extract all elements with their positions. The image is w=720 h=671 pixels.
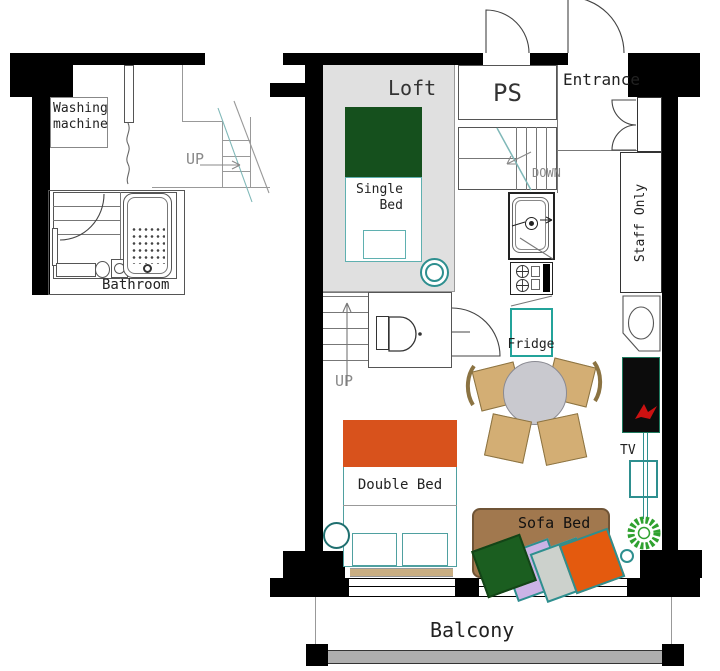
balcony-side [315,597,316,648]
plant-icon [631,520,657,546]
toilet-small [95,261,110,278]
toilet-tank [376,316,389,350]
shoe-closet [637,97,662,152]
left-stairs-diagonal [234,101,269,193]
balcony-side [671,597,672,648]
stair-step [222,171,250,172]
vanity-counter [56,263,96,277]
wall [456,578,478,597]
floor-dot [620,549,634,563]
tv [622,357,660,433]
hall-step [557,150,637,151]
outline [250,117,251,188]
stair-step [323,292,368,293]
closet-door-arc [612,100,636,125]
entrance-door-arc [568,0,624,53]
pipe-duct [124,65,134,123]
bathtub-drain [143,264,152,273]
stair-step [323,296,368,297]
shower-line [53,220,120,221]
stair-step [323,328,368,329]
stair-step [323,312,368,313]
loft-label: Loft [388,76,436,100]
staff-only-label: Staff Only [633,183,649,261]
dining-chair [537,413,587,466]
floor-plan: Washing machine UP Bathroom Loft PS [0,0,720,671]
wall [628,578,700,597]
wall [270,83,305,97]
outline [152,187,270,188]
washbasin [623,296,660,351]
bedside-stool [323,522,350,549]
double-bed-pillow [352,533,397,566]
wall [640,550,702,578]
wall [662,97,678,550]
wall [530,53,568,65]
stove-tray [531,279,540,290]
balcony-railing [326,650,664,664]
shower-line [53,234,120,235]
washbasin-bowl [629,307,654,339]
stair-step [546,127,547,190]
burner [516,279,529,292]
tv-cable [647,433,648,519]
shower-panel [52,228,58,266]
up-label-main: UP [335,372,353,390]
single-bed-head [345,107,422,177]
window-line [348,586,456,587]
stove-tray [531,266,540,277]
stair-step [536,127,537,190]
outline [222,121,223,188]
balcony-post [306,644,328,666]
bathtub-dots [131,226,165,264]
pipe-squiggle [127,123,129,184]
window-sliding [348,578,456,597]
stair-step [516,127,517,190]
single-bed-label: Single Bed [356,182,403,213]
stair-step [526,127,527,190]
wall [283,551,345,578]
hall-line [557,65,558,193]
dining-table [503,361,567,425]
loft-stool-inner [425,263,444,282]
outline [182,121,223,122]
stair-step [323,344,368,345]
shower-line [53,206,120,207]
balcony-post [662,644,684,666]
entrance-label: Entrance [563,70,640,89]
balcony-label: Balcony [430,618,514,642]
outline [182,65,183,122]
stair-step [222,140,250,141]
tv-label: TV [620,443,636,459]
bathroom-label: Bathroom [102,277,169,294]
ps-door-arc [486,10,529,53]
dining-chair [484,413,532,463]
stair-step [222,156,250,157]
wall [270,578,348,597]
left-stairs-arrow [200,161,240,169]
plant-center [639,528,650,539]
ps-label: PS [493,79,522,108]
burner [516,265,529,278]
wall [305,63,323,553]
sofa-bed-label: Sofa Bed [518,514,590,532]
double-bed-pillow [402,533,448,566]
stair-step [458,158,516,159]
staff-closet: Staff Only [620,152,662,293]
fridge-label: Fridge [501,337,561,353]
closet-door-arc [612,125,636,150]
double-bed-blanket [343,420,457,467]
double-bed-label: Double Bed [343,477,457,494]
faucet-dot [529,221,534,226]
stove-grill [543,264,550,292]
washing-machine-label: Washing machine [53,101,108,132]
toilet-door-arc [452,308,500,356]
stove-diagonal [511,296,552,306]
tv-cable [643,433,644,519]
stair-step [323,360,368,361]
double-bed-skirt [350,568,453,577]
up-label-left: UP [186,150,204,168]
single-bed-pillow [363,230,406,259]
double-bed-line [343,505,457,506]
